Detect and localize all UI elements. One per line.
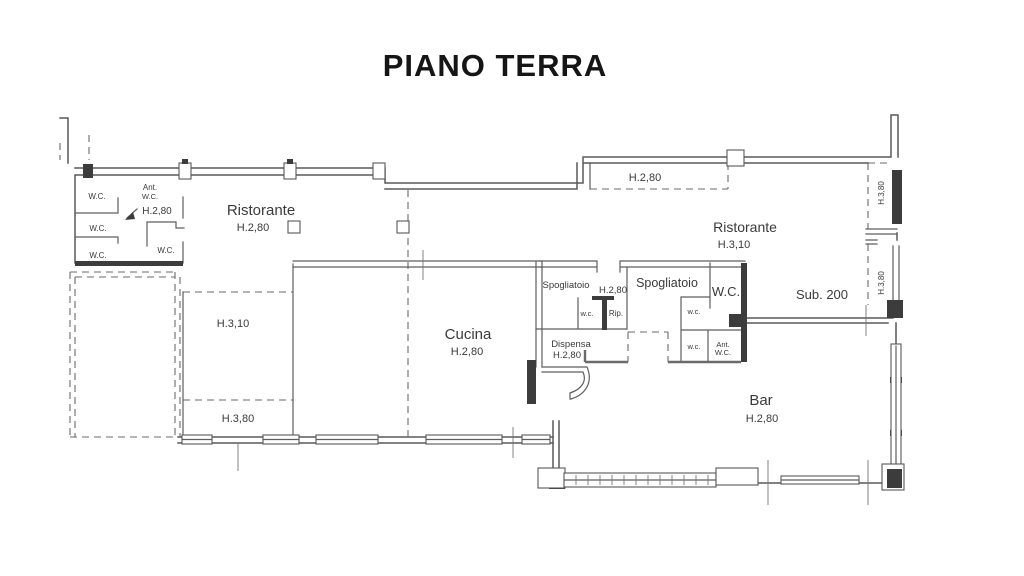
label-wc-4: W.C. [157, 246, 174, 255]
label-wc-3: W.C. [89, 251, 106, 260]
column-2 [397, 221, 409, 233]
bar-window-frame-right [716, 468, 758, 485]
top-window-cap-2 [287, 159, 293, 164]
label-wc-1: W.C. [88, 192, 105, 201]
bar-window-frame-left [538, 468, 565, 488]
boundary-corner-line [60, 118, 68, 163]
left-height-zone-dashed [183, 292, 293, 400]
bar-door-block [729, 314, 743, 327]
top-window-mullion-2 [284, 163, 296, 179]
label-dispensa-height: H.2,80 [553, 350, 581, 361]
label-zone-h310: H.3,10 [217, 318, 249, 330]
label-wc-main: W.C. [712, 284, 740, 299]
leader-arrowhead [125, 212, 135, 220]
height-leader-arrow [125, 209, 137, 220]
left-dividers [183, 264, 293, 437]
bar-west-wall [553, 421, 559, 469]
label-bar-height: H.2,80 [746, 413, 778, 425]
label-ristorante-left: Ristorante [227, 202, 295, 219]
bar-stub-wall [527, 360, 536, 404]
label-niche-lower-height: H.3,80 [877, 271, 886, 295]
left-porch-dashed [70, 272, 180, 440]
label-spogliatoio-big: Spogliatoio [636, 276, 698, 290]
label-wc-cluster-height: H.2,80 [142, 206, 172, 217]
column-1 [288, 221, 300, 233]
bar-south-window [538, 468, 859, 488]
label-ristorante-right: Ristorante [713, 219, 777, 235]
niche-upper-wall-block [892, 170, 902, 224]
top-window-end-block [83, 164, 93, 178]
top-window-mullion-1 [179, 163, 191, 179]
dispensa-curve-wall [542, 367, 589, 399]
top-window-cap-1 [182, 159, 188, 164]
cucina-walls [293, 261, 542, 367]
bar-east-window [882, 344, 904, 490]
wc-main-right-wall [741, 263, 747, 362]
label-dispensa: Dispensa [551, 339, 591, 350]
boundary-dashes [60, 135, 89, 160]
service-door-header [592, 296, 614, 300]
label-rip: Rip. [609, 309, 623, 318]
label-spogliatoio-small: Spogliatoio [542, 280, 589, 291]
label-ristorante-left-height: H.2,80 [237, 222, 269, 234]
label-spogliatoio-small-height: H.2,80 [599, 285, 627, 296]
label-wc-2: W.C. [89, 224, 106, 233]
columns [288, 221, 409, 233]
floor-plan-svg: PIANO TERRA W.C. Ant. W.C. H.2,80 W.C. W… [0, 0, 1024, 576]
room-labels: PIANO TERRA W.C. Ant. W.C. H.2,80 W.C. W… [88, 48, 886, 425]
top-wall-column [727, 150, 744, 166]
niche-lower-wall-block [887, 300, 903, 318]
wc-cluster-bottom-wall [75, 261, 183, 266]
corridor-dashed [628, 332, 668, 362]
label-ant-wc-line2: W.C. [142, 192, 158, 201]
label-cucina: Cucina [445, 326, 492, 343]
label-zone-top-right-height: H.2,80 [629, 172, 661, 184]
label-sub-200: Sub. 200 [796, 287, 848, 302]
top-wall [75, 115, 898, 263]
label-bar: Bar [749, 392, 772, 409]
label-wc-small-center: w.c. [580, 309, 594, 318]
top-window-mullion-3 [373, 163, 385, 179]
label-ristorante-right-height: H.3,10 [718, 239, 750, 251]
label-zone-h380: H.3,80 [222, 413, 254, 425]
label-ant-wc-right-line2: W.C. [715, 348, 731, 357]
floor-plan-page: PIANO TERRA W.C. Ant. W.C. H.2,80 W.C. W… [0, 0, 1024, 576]
label-cucina-height: H.2,80 [451, 346, 483, 358]
label-wc-right-upper: w.c. [687, 307, 701, 316]
label-ant-wc-line1: Ant. [143, 183, 157, 192]
label-niche-upper-height: H.3,80 [877, 181, 886, 205]
page-title: PIANO TERRA [383, 48, 608, 83]
label-wc-right-lower: w.c. [687, 342, 701, 351]
cluster-top-wall [540, 261, 745, 272]
rip-wall-block [602, 300, 607, 330]
se-corner-block [887, 469, 902, 488]
